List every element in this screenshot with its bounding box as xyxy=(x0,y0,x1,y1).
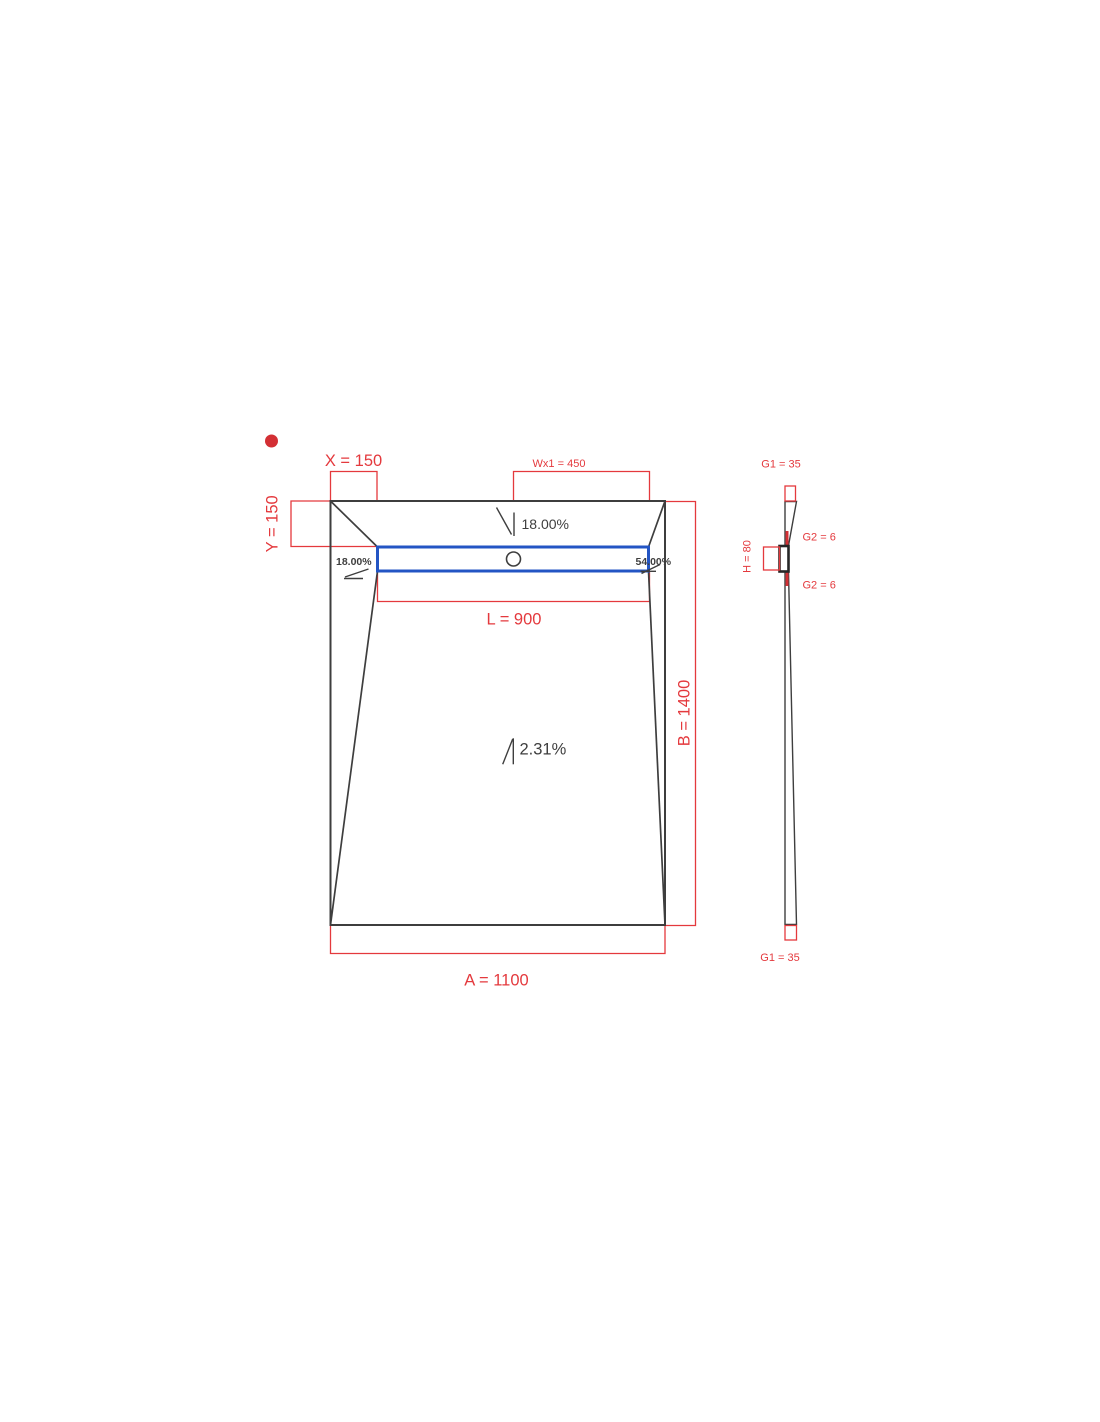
side-h-label: H = 80 xyxy=(742,540,754,573)
slope-arrow-top xyxy=(497,508,515,537)
dim-b-label: B = 1400 xyxy=(676,680,694,747)
slope-main-label: 2.31% xyxy=(520,741,567,759)
dim-wx1-bracket xyxy=(514,472,650,502)
fold-line-bottom-right xyxy=(649,571,666,925)
dim-y-label: Y = 150 xyxy=(264,495,282,552)
fold-line-top-left xyxy=(331,501,378,547)
side-g1-top-label: G1 = 35 xyxy=(761,459,800,471)
side-profile-lower-wedge xyxy=(785,572,797,925)
dim-a-label: A = 1100 xyxy=(464,972,528,990)
drawing-svg: X = 150 Y = 150 Wx1 = 450 L = 900 B = 14… xyxy=(0,0,1100,1422)
slope-arrow-left xyxy=(344,569,369,579)
dim-y-bracket xyxy=(291,501,378,547)
dim-x-bracket xyxy=(331,472,378,502)
dim-l-bracket xyxy=(378,572,650,602)
fold-line-bottom-left xyxy=(331,571,378,925)
red-marker-dot xyxy=(265,435,278,448)
drain-channel xyxy=(378,547,649,571)
dim-x-label: X = 150 xyxy=(325,452,382,470)
shower-tray-technical-drawing: X = 150 Y = 150 Wx1 = 450 L = 900 B = 14… xyxy=(0,0,1100,1422)
dim-a-bracket xyxy=(331,925,666,954)
side-g1-bottom-label: G1 = 35 xyxy=(760,952,799,964)
side-g2-marker-lower xyxy=(786,572,789,587)
side-g1-top-bracket xyxy=(785,486,796,501)
side-g2-marker-upper xyxy=(786,531,789,546)
side-g2-lower-label: G2 = 6 xyxy=(803,580,836,592)
side-g1-bottom-bracket xyxy=(785,926,797,941)
slope-right-label: 54.00% xyxy=(636,556,672,568)
slope-arrow-main xyxy=(503,738,514,764)
side-drain-body xyxy=(780,546,789,572)
slope-top-label: 18.00% xyxy=(522,516,569,532)
slope-left-label: 18.00% xyxy=(336,556,372,568)
side-g2-upper-label: G2 = 6 xyxy=(803,532,836,544)
side-h-bracket xyxy=(764,547,780,570)
fold-line-top-right xyxy=(649,501,666,547)
dim-l-label: L = 900 xyxy=(487,611,542,629)
dim-wx1-label: Wx1 = 450 xyxy=(533,458,586,470)
